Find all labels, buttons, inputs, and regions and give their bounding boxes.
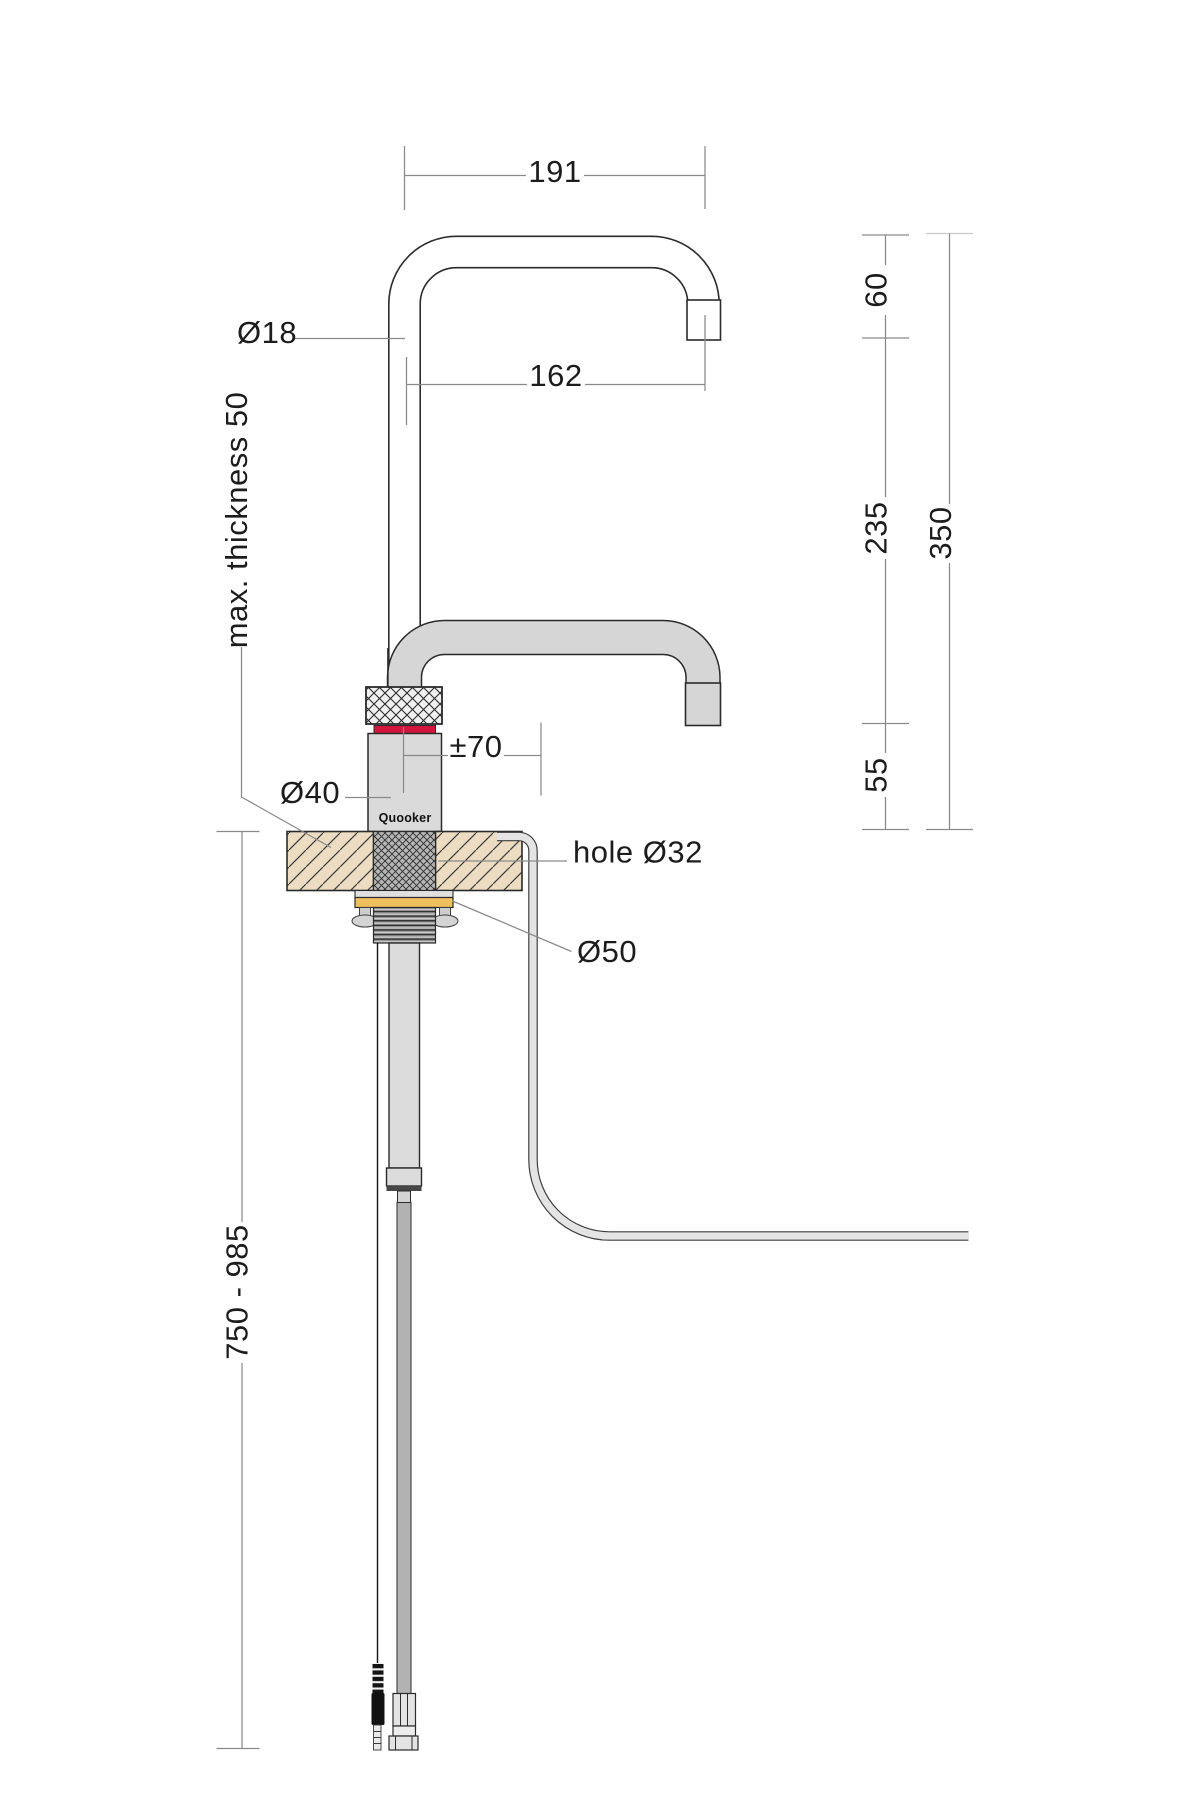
dim-spout-width-outer: 191	[405, 146, 706, 210]
dim-750-985-value: 750 - 985	[220, 1224, 255, 1360]
label-max-thickness-value: max. thickness 50	[219, 392, 254, 649]
jack-plug-body	[372, 1693, 385, 1725]
dim-total-height: 350	[923, 234, 973, 830]
threaded-shank-lower	[374, 908, 436, 944]
short-spout-inner	[405, 637, 704, 702]
dim-235-value: 235	[859, 501, 894, 554]
riser-rod	[397, 1203, 411, 1694]
down-tube	[389, 943, 420, 1168]
label-o40-value: Ø40	[280, 775, 340, 810]
under-counter-assembly	[387, 943, 422, 1750]
dim-70-value: ±70	[450, 729, 503, 764]
label-o50-value: Ø50	[577, 934, 637, 969]
knurled-nut	[366, 687, 442, 724]
flexible-hose	[497, 837, 968, 1237]
worktop-left	[287, 832, 374, 891]
label-washer-diameter: Ø50	[453, 901, 638, 969]
coupling-nut	[389, 1736, 418, 1750]
dim-under-counter-length: 750 - 985	[217, 832, 260, 1749]
red-ring	[374, 726, 436, 734]
mounting-flange	[355, 891, 453, 898]
label-spout-diameter: Ø18	[237, 315, 405, 350]
hose-fill	[497, 837, 968, 1237]
threaded-shank-upper	[374, 832, 436, 891]
dim-55-value: 55	[859, 757, 894, 792]
dim-350-value: 350	[923, 506, 958, 559]
dim-162-value: 162	[529, 358, 582, 393]
tube-collar	[387, 1168, 422, 1186]
tube-collar-band	[387, 1186, 422, 1191]
brand-logo-text: Quooker	[379, 811, 432, 825]
jack-strain-relief	[373, 1663, 384, 1693]
label-hole-o32-value: hole Ø32	[573, 835, 703, 870]
short-spout-nozzle	[686, 683, 721, 726]
dim-spout-width-inner: 162	[407, 315, 706, 425]
dim-60-value: 60	[859, 272, 894, 307]
coupling-block	[393, 1694, 416, 1727]
coupling-flange	[393, 1726, 416, 1736]
dim-right-stack: 60 235 55	[859, 235, 910, 830]
dim-191-value: 191	[528, 154, 581, 189]
leader-o50	[453, 901, 572, 952]
label-o18-value: Ø18	[237, 315, 297, 350]
leader-max-thickness	[242, 647, 332, 848]
technical-drawing-page: Quooker	[0, 0, 1200, 1800]
tube-neck	[398, 1191, 411, 1203]
control-cable	[372, 943, 385, 1750]
tap-dimension-diagram: Quooker	[0, 0, 1200, 1800]
hose-outline	[497, 837, 968, 1237]
washer-gold	[355, 898, 453, 908]
tall-spout-nozzle	[687, 300, 721, 340]
